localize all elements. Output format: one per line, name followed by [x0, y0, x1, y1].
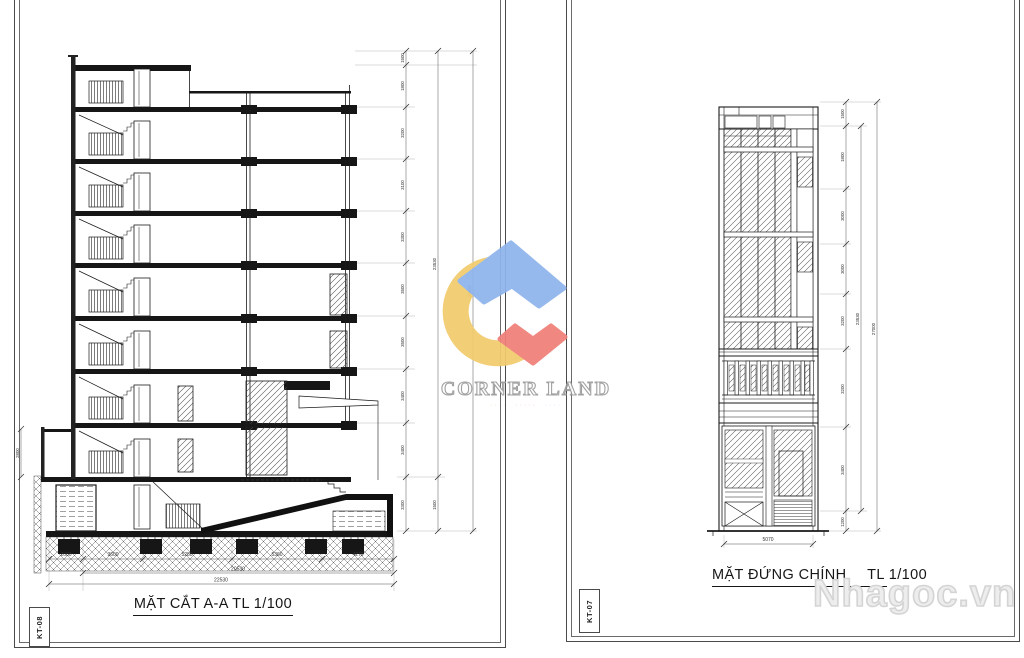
- elevation-drawing: 5070 1500 1800 3000 3000 3200 3200 3400: [567, 0, 1019, 639]
- dim-label: 1200: [840, 517, 845, 527]
- dim-label: 3300: [400, 232, 405, 242]
- logo-tagline: ···· ····· ····: [426, 402, 626, 409]
- dim-label: 3300: [400, 500, 405, 510]
- sheet-kt08: 2800 1500 1800 3200 3100 3300 3500: [14, 0, 506, 648]
- scanned-drawing-page: 2800 1500 1800 3200 3100 3300 3500: [0, 0, 1024, 658]
- dim-label: 27000: [871, 322, 876, 335]
- dim-label: 3500: [400, 337, 405, 347]
- dim-label: 3400: [840, 465, 845, 475]
- ground-line: [707, 531, 829, 536]
- basement-ramp: [201, 494, 393, 537]
- dim-label: 5070: [762, 537, 773, 543]
- dim-label: 20530: [231, 567, 245, 573]
- width-dim: 5070: [721, 537, 816, 547]
- soil-hatch-left: [34, 476, 41, 573]
- left-extension-wall: [41, 427, 45, 477]
- cornerland-logo-text: CORNER LAND: [426, 378, 626, 401]
- dim-label: 5280: [181, 552, 192, 558]
- dim-label: 3200: [840, 384, 845, 394]
- dim-label: 4270: [352, 552, 363, 558]
- storefront: [722, 426, 815, 526]
- dim-label: 3000: [840, 211, 845, 221]
- sheet-code-text: KT-08: [35, 616, 44, 639]
- cornerland-logo-icon: [438, 236, 613, 381]
- dim-label: 3100: [400, 180, 405, 190]
- dim-label: 3400: [400, 445, 405, 455]
- cornerland-watermark: CORNER LAND ···· ····· ····: [438, 236, 613, 431]
- dim-label: 3000: [840, 264, 845, 274]
- sheet-kt07: 5070 1500 1800 3000 3000 3200 3200 3400: [566, 0, 1020, 642]
- water-tank: [56, 485, 96, 531]
- dim-label: 1500: [432, 500, 437, 510]
- dim-label: 23530: [432, 257, 437, 270]
- glazed-panels: [178, 274, 347, 475]
- left-extension-dim: 2800: [15, 426, 24, 480]
- dim-label: 3200: [840, 316, 845, 326]
- sheet-code-text: KT-07: [585, 600, 594, 623]
- section-title: MẶT CẮT A-A TL 1/100: [133, 596, 293, 616]
- sheet-code-kt08: KT-08: [29, 607, 50, 647]
- foundation-slab: [46, 531, 393, 537]
- site-watermark: Nhagoc.vn: [813, 573, 1016, 616]
- dim-label: 3600: [107, 552, 118, 558]
- dim-label: 1800: [840, 152, 845, 162]
- cross-section-drawing: 2800 1500 1800 3200 3100 3300 3500: [15, 0, 505, 645]
- dim-label: 23530: [855, 312, 860, 325]
- dim-label: 3500: [400, 284, 405, 294]
- dim-label: 5360: [271, 552, 282, 558]
- dim-label: 2800: [15, 448, 20, 458]
- dim-label: 3200: [400, 128, 405, 138]
- louver-band: [719, 361, 818, 423]
- dim-label: 1500: [400, 53, 405, 63]
- sheet-code-kt07: KT-07: [579, 589, 600, 633]
- dim-label: 3400: [400, 391, 405, 401]
- dim-label: 2000: [60, 552, 71, 558]
- left-wall: [71, 57, 76, 479]
- logo-blue-chevron: [460, 243, 564, 306]
- dim-label: 1800: [400, 81, 405, 91]
- dim-label: 22530: [214, 578, 228, 584]
- ground-hatch-band: [46, 537, 393, 571]
- parapet-cap: [68, 55, 78, 57]
- slab-band: [719, 349, 818, 356]
- curtain-wall: [724, 129, 813, 349]
- vertical-dim-chains: 1500 1800 3000 3000 3200 3200 3400 1200 …: [840, 99, 880, 534]
- dim-label: 1500: [840, 109, 845, 119]
- floor-slabs: [41, 65, 351, 482]
